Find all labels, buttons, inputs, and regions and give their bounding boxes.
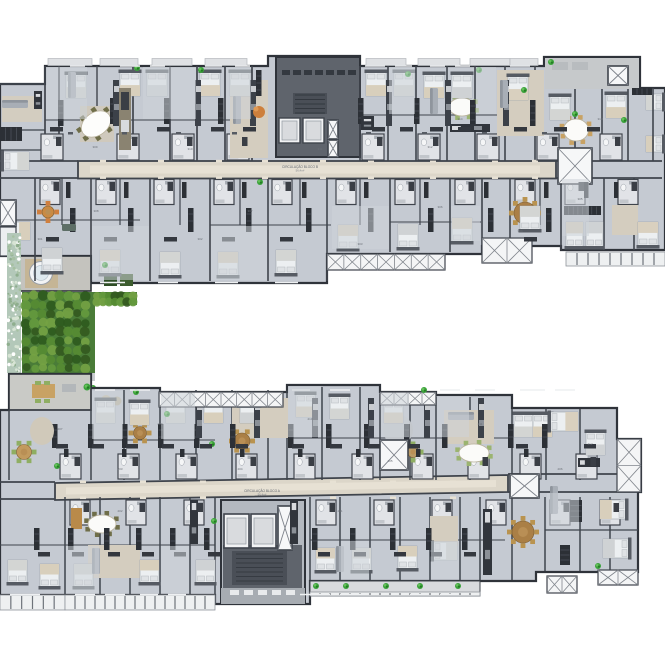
svg-text:303: 303: [357, 242, 362, 246]
svg-text:302: 302: [197, 237, 202, 241]
svg-text:310: 310: [187, 147, 192, 151]
svg-text:309: 309: [92, 145, 97, 149]
svg-text:312: 312: [427, 145, 432, 149]
svg-text:313: 313: [597, 117, 602, 121]
svg-text:304: 304: [517, 229, 522, 233]
svg-text:307: 307: [247, 209, 252, 213]
svg-text:211: 211: [478, 422, 483, 426]
svg-text:56,4m²: 56,4m²: [258, 493, 267, 497]
svg-text:207: 207: [57, 427, 62, 431]
svg-text:56,4m²: 56,4m²: [296, 169, 305, 173]
svg-text:206: 206: [557, 467, 562, 471]
svg-text:208: 208: [447, 509, 452, 513]
svg-text:314: 314: [457, 117, 462, 121]
svg-text:306: 306: [437, 205, 442, 209]
svg-text:203: 203: [117, 467, 122, 471]
svg-text:204: 204: [237, 467, 242, 471]
svg-text:212: 212: [587, 442, 592, 446]
svg-text:202: 202: [117, 509, 122, 513]
svg-text:305: 305: [577, 197, 582, 201]
svg-text:308: 308: [93, 209, 98, 213]
svg-text:301: 301: [37, 237, 42, 241]
svg-text:311: 311: [318, 147, 323, 151]
svg-text:210: 210: [307, 417, 312, 421]
svg-text:201: 201: [337, 509, 342, 513]
svg-text:205: 205: [387, 459, 392, 463]
svg-text:209: 209: [157, 422, 162, 426]
